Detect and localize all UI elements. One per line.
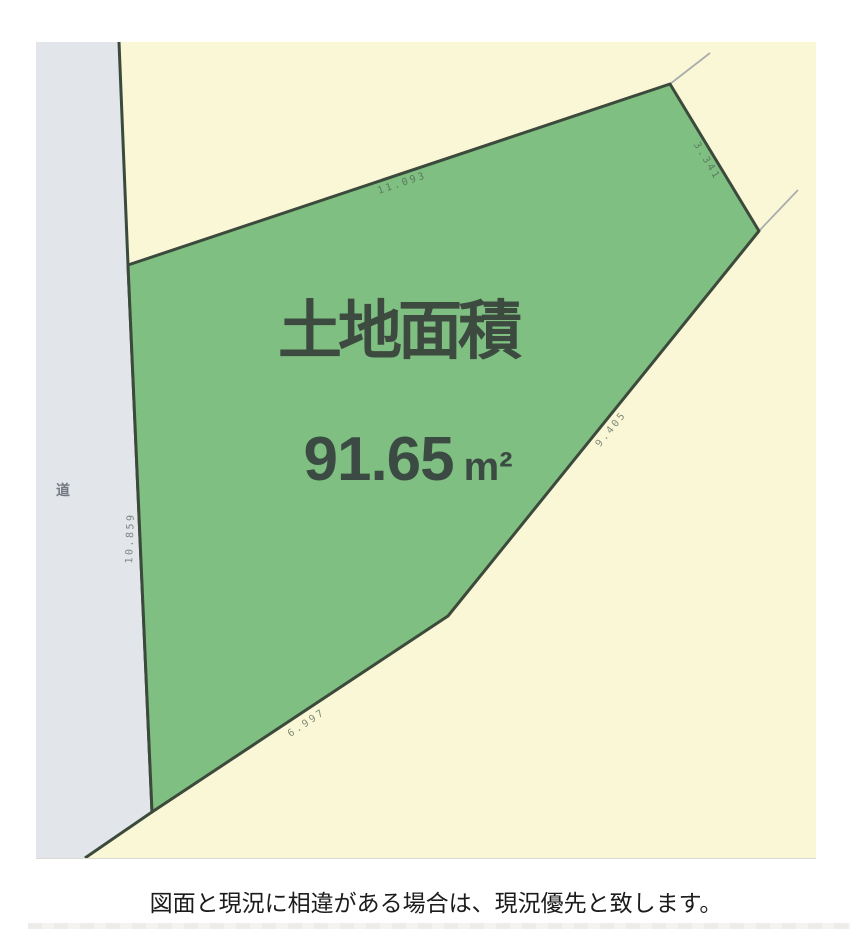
road-strip <box>36 42 152 858</box>
scanned-page: { "drawing": { "title": "土地面積", "area_va… <box>0 0 850 930</box>
area-unit: m² <box>464 445 513 489</box>
dimension-label-left: 10.859 <box>124 512 137 563</box>
caption-note: 図面と現況に相違がある場合は、現況優先と致します。 <box>0 884 850 918</box>
survey-extension-line-top <box>670 53 710 84</box>
parcel-area-title: 土地面積 <box>278 280 518 372</box>
scan-artifact-strip <box>28 923 850 929</box>
survey-extension-line-right <box>759 190 798 231</box>
road-label: 道 <box>56 480 70 500</box>
area-number: 91.65 <box>303 425 453 494</box>
plat-drawing: 11.093 3.341 9.405 6.997 10.859 道 土地面積 9… <box>36 42 816 858</box>
parcel-area-value: 91.65m² <box>303 424 512 495</box>
